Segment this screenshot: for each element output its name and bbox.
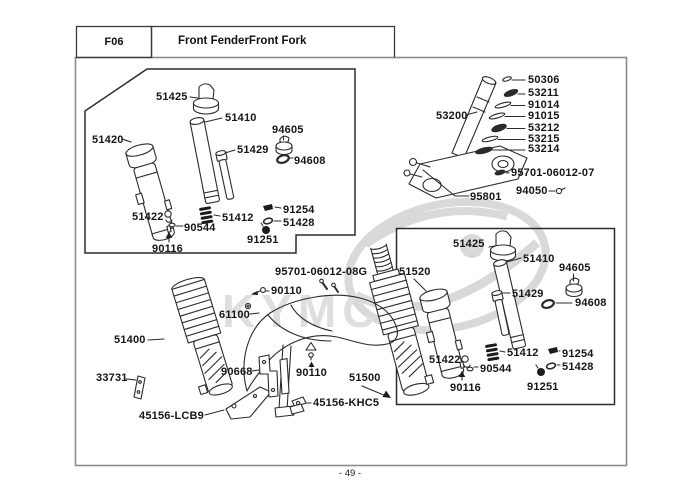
drawing-bolt-lower (306, 343, 316, 368)
part-label-51428-left: 51428 (283, 217, 315, 229)
part-label-51422-left: 51422 (132, 211, 164, 223)
part-label-51425-left: 51425 (156, 91, 188, 103)
part-label-51410-right: 51410 (523, 253, 555, 265)
page-title: Front FenderFront Fork (178, 35, 306, 47)
part-label-51400: 51400 (114, 334, 146, 346)
catalog-page: KYMCO (0, 0, 700, 495)
part-label-90110-lower: 90110 (296, 367, 327, 379)
part-label-95701-06012-08G: 95701-06012-08G (275, 266, 367, 278)
part-label-91254-left: 91254 (283, 204, 315, 216)
part-label-51429-left: 51429 (237, 144, 269, 156)
part-label-94605-right: 94605 (559, 262, 591, 274)
part-label-51412-left: 51412 (222, 212, 254, 224)
part-label-95701-06012-07: 95701-06012-07 (511, 167, 595, 179)
part-label-45156-LCB9: 45156-LCB9 (139, 410, 204, 422)
part-label-51422-right: 51422 (429, 354, 461, 366)
drawing-o-ring-left (276, 154, 290, 165)
part-label-95801: 95801 (470, 191, 502, 203)
part-label-51425-right: 51425 (453, 238, 485, 250)
part-label-51428-right: 51428 (562, 361, 594, 373)
part-label-51410-left: 51410 (225, 112, 257, 124)
drawing-piston-ring-left (263, 217, 273, 224)
part-label-91251-left: 91251 (247, 234, 279, 246)
part-label-94050: 94050 (516, 185, 548, 197)
part-label-53200: 53200 (436, 110, 468, 122)
part-label-50306: 50306 (528, 74, 560, 86)
part-label-94608-left: 94608 (294, 155, 326, 167)
part-label-90668: 90668 (221, 366, 253, 378)
part-label-90116-right: 90116 (450, 382, 481, 394)
drawing-piston-ring-right (546, 362, 556, 369)
part-label-94605-left: 94605 (272, 124, 304, 136)
drawing-cap-left (190, 84, 219, 114)
part-label-91254-right: 91254 (562, 348, 594, 360)
drawing-valve-right (536, 365, 545, 376)
drawing-valve-left (261, 223, 270, 234)
part-label-45156-KHC5: 45156-KHC5 (313, 397, 379, 409)
part-label-91251-right: 91251 (527, 381, 559, 393)
drawing-rebound-spring-right (485, 343, 500, 361)
part-label-91015: 91015 (528, 110, 560, 122)
part-label-90116-left: 90116 (152, 243, 183, 255)
part-label-51420: 51420 (92, 134, 124, 146)
part-label-51429-right: 51429 (512, 288, 544, 300)
drawing-piston-right (548, 347, 558, 354)
drawing-piston-left (263, 204, 273, 211)
part-label-61100: 61100 (219, 309, 250, 321)
drawing-cap-right (489, 231, 516, 261)
drawing-lock-nut-left (276, 136, 292, 155)
drawing-lock-nut-right (566, 274, 582, 297)
part-label-90544-right: 90544 (480, 363, 512, 375)
page-number: - 49 - (0, 468, 700, 479)
drawing-stay-bracket (126, 376, 145, 399)
part-label-51412-right: 51412 (507, 347, 539, 359)
header-code: F06 (76, 26, 152, 57)
drawing-o-ring-right (541, 299, 555, 310)
drawing-inner-tube-left (190, 117, 220, 204)
part-label-90110-upper: 90110 (271, 285, 302, 297)
part-label-53214: 53214 (528, 143, 560, 155)
part-label-90544-left: 90544 (184, 222, 216, 234)
part-label-51520: 51520 (399, 266, 431, 278)
part-label-51500: 51500 (349, 372, 381, 384)
parts-diagram: KYMCO (0, 0, 700, 495)
part-label-53211: 53211 (528, 87, 559, 99)
part-label-33731: 33731 (96, 372, 128, 384)
part-label-94608-right: 94608 (575, 297, 607, 309)
